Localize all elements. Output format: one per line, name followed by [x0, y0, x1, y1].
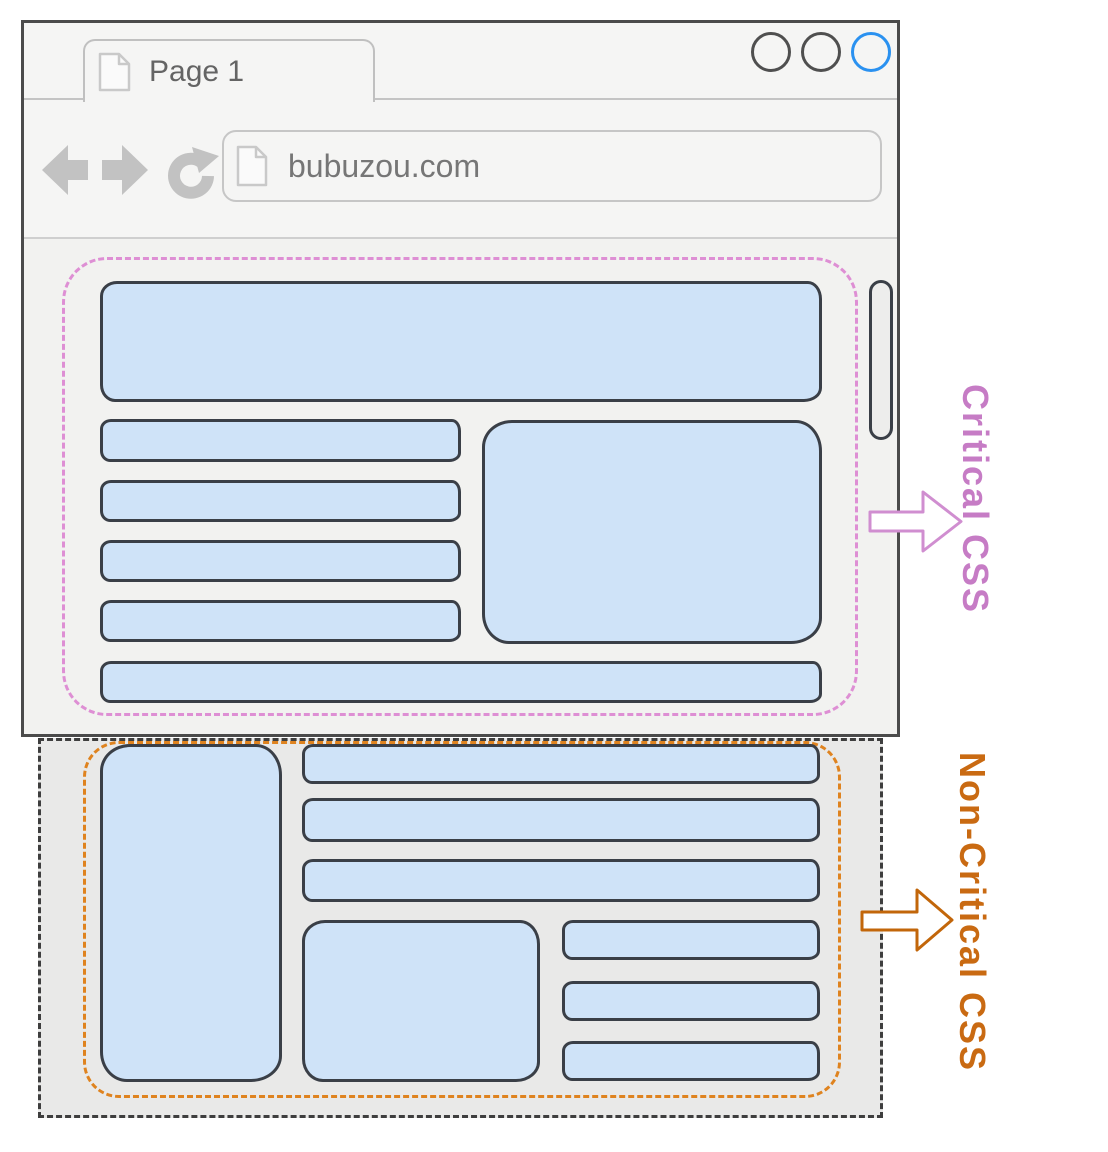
scrollbar-thumb[interactable]: [869, 280, 893, 440]
window-control-active[interactable]: [851, 32, 891, 72]
wireframe-media-block: [302, 920, 540, 1082]
url-bar[interactable]: bubuzou.com: [222, 130, 882, 202]
browser-tab[interactable]: Page 1: [83, 39, 375, 102]
critical-arrow-icon: [866, 488, 966, 556]
wireframe-text-bar: [100, 540, 461, 582]
critical-css-label: Critical CSS: [954, 384, 996, 614]
wireframe-text-bar: [100, 600, 461, 642]
wireframe-text-bar: [562, 1041, 820, 1081]
url-text: bubuzou.com: [288, 148, 480, 185]
wireframe-hero-block: [100, 281, 822, 402]
wireframe-text-bar: [100, 419, 461, 462]
window-control-2[interactable]: [801, 32, 841, 72]
tab-title: Page 1: [149, 55, 244, 89]
reload-button[interactable]: [163, 145, 221, 203]
forward-button[interactable]: [102, 143, 148, 197]
wireframe-text-bar: [302, 859, 820, 902]
non-critical-css-label: Non-Critical CSS: [951, 752, 993, 1072]
page-icon: [236, 145, 268, 187]
wireframe-media-block: [482, 420, 822, 644]
page-icon: [97, 52, 131, 92]
wireframe-text-bar: [562, 981, 820, 1021]
wireframe-text-bar: [302, 798, 820, 842]
window-control-1[interactable]: [751, 32, 791, 72]
wireframe-text-bar: [302, 744, 820, 784]
wireframe-text-bar: [562, 920, 820, 960]
back-button[interactable]: [42, 143, 88, 197]
non-critical-arrow-icon: [858, 886, 958, 954]
wireframe-text-bar: [100, 661, 822, 703]
wireframe-sidebar-block: [100, 744, 282, 1082]
wireframe-text-bar: [100, 480, 461, 522]
